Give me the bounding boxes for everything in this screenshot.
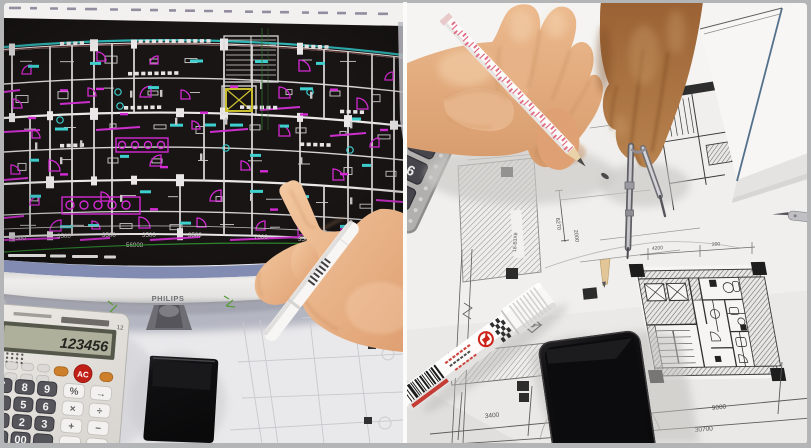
svg-text:%: % [69,386,79,398]
svg-text:−: − [95,423,102,434]
svg-text:8: 8 [21,382,28,394]
svg-text:12: 12 [117,325,125,332]
svg-text:→: → [95,388,106,400]
svg-text:200: 200 [712,241,721,248]
svg-text:2: 2 [18,417,25,429]
svg-text:3400: 3400 [485,412,500,420]
svg-text:5: 5 [20,399,27,411]
svg-text:9: 9 [44,384,51,396]
svg-text:PHILIPS: PHILIPS [152,294,185,303]
svg-text:3: 3 [41,418,48,430]
svg-text:+: + [68,421,75,432]
svg-text:6: 6 [42,401,49,413]
svg-text:AC: AC [77,370,89,380]
svg-text:×: × [69,404,76,415]
svg-text:4200: 4200 [652,245,664,252]
